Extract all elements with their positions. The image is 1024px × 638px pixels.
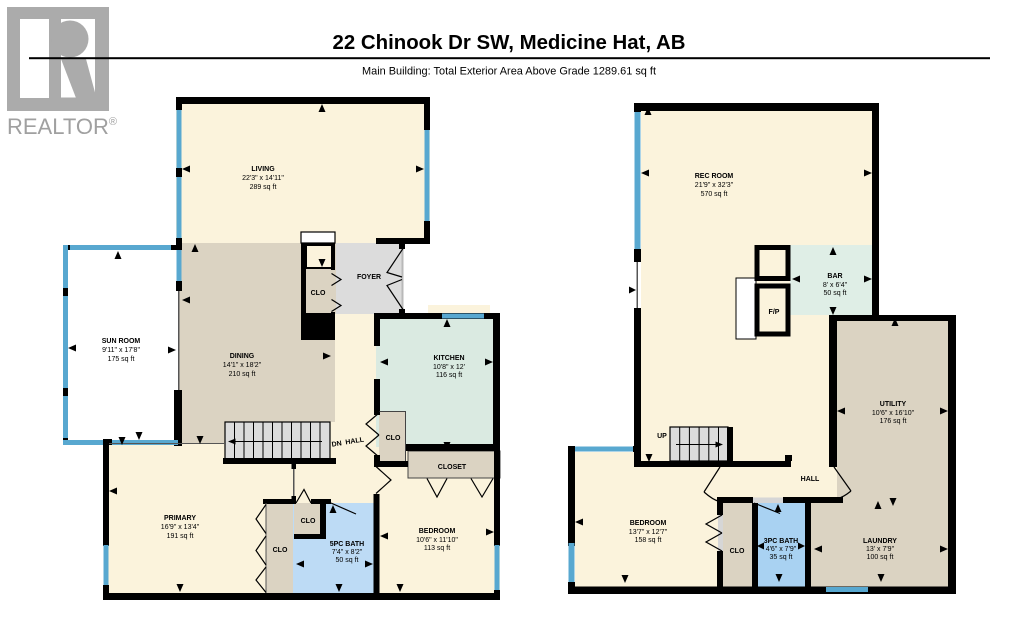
- svg-text:175 sq ft: 175 sq ft: [108, 356, 135, 363]
- svg-text:LIVING: LIVING: [251, 166, 275, 173]
- svg-text:113 sq ft: 113 sq ft: [424, 545, 450, 552]
- svg-text:CLOSET: CLOSET: [438, 464, 467, 471]
- svg-text:HALL: HALL: [801, 476, 820, 483]
- svg-text:UTILITY: UTILITY: [880, 401, 907, 408]
- svg-text:50 sq ft: 50 sq ft: [824, 290, 847, 297]
- svg-text:BEDROOM: BEDROOM: [630, 520, 667, 527]
- svg-text:16'9" x 13'4": 16'9" x 13'4": [161, 524, 200, 531]
- svg-text:210 sq ft: 210 sq ft: [229, 371, 256, 378]
- svg-text:100 sq ft: 100 sq ft: [867, 554, 894, 561]
- svg-text:9'11" x 17'8": 9'11" x 17'8": [102, 347, 140, 354]
- svg-text:BEDROOM: BEDROOM: [419, 528, 456, 535]
- svg-text:10'6" x 16'10": 10'6" x 16'10": [872, 410, 915, 417]
- svg-text:13'7" x 12'7": 13'7" x 12'7": [629, 529, 668, 536]
- svg-text:191 sq ft: 191 sq ft: [167, 533, 194, 540]
- svg-text:289 sq ft: 289 sq ft: [250, 184, 277, 191]
- svg-text:21'9" x 32'3": 21'9" x 32'3": [695, 182, 734, 189]
- svg-text:LAUNDRY: LAUNDRY: [863, 538, 897, 545]
- svg-text:35 sq ft: 35 sq ft: [770, 554, 793, 561]
- svg-text:13' x 7'9": 13' x 7'9": [866, 546, 895, 553]
- svg-text:CLO: CLO: [311, 290, 326, 297]
- svg-text:7'4" x 8'2": 7'4" x 8'2": [332, 549, 363, 556]
- svg-text:10'8" x 12': 10'8" x 12': [433, 364, 465, 371]
- svg-text:158 sq ft: 158 sq ft: [635, 537, 662, 544]
- svg-text:UP: UP: [657, 433, 667, 440]
- svg-text:FOYER: FOYER: [357, 274, 381, 281]
- svg-text:PRIMARY: PRIMARY: [164, 515, 196, 522]
- svg-text:116 sq ft: 116 sq ft: [436, 372, 462, 379]
- svg-text:10'6" x 11'10": 10'6" x 11'10": [416, 537, 458, 544]
- svg-text:5PC BATH: 5PC BATH: [330, 541, 364, 548]
- svg-text:SUN ROOM: SUN ROOM: [102, 338, 141, 345]
- svg-text:CLO: CLO: [301, 518, 316, 525]
- svg-text:50 sq ft: 50 sq ft: [336, 557, 359, 564]
- svg-text:CLO: CLO: [730, 548, 745, 555]
- svg-text:Main Building: Total Exterior: Main Building: Total Exterior Area Above…: [362, 66, 656, 78]
- svg-text:DINING: DINING: [230, 353, 255, 360]
- svg-text:REALTOR®: REALTOR®: [7, 114, 117, 139]
- svg-text:22'3" x 14'11": 22'3" x 14'11": [242, 175, 284, 182]
- svg-text:CLO: CLO: [273, 547, 288, 554]
- svg-text:3PC BATH: 3PC BATH: [764, 538, 798, 545]
- svg-text:176 sq ft: 176 sq ft: [880, 418, 907, 425]
- svg-text:14'1" x 18'2": 14'1" x 18'2": [223, 362, 262, 369]
- svg-text:KITCHEN: KITCHEN: [433, 355, 464, 362]
- svg-text:F/P: F/P: [769, 309, 780, 316]
- svg-text:REC ROOM: REC ROOM: [695, 173, 734, 180]
- svg-text:22 Chinook Dr SW, Medicine Hat: 22 Chinook Dr SW, Medicine Hat, AB: [333, 32, 686, 54]
- svg-text:CLO: CLO: [386, 435, 401, 442]
- svg-text:570 sq ft: 570 sq ft: [701, 191, 728, 198]
- svg-text:8' x 6'4": 8' x 6'4": [823, 282, 848, 289]
- svg-text:4'6" x 7'9": 4'6" x 7'9": [766, 546, 797, 553]
- svg-text:BAR: BAR: [827, 273, 842, 280]
